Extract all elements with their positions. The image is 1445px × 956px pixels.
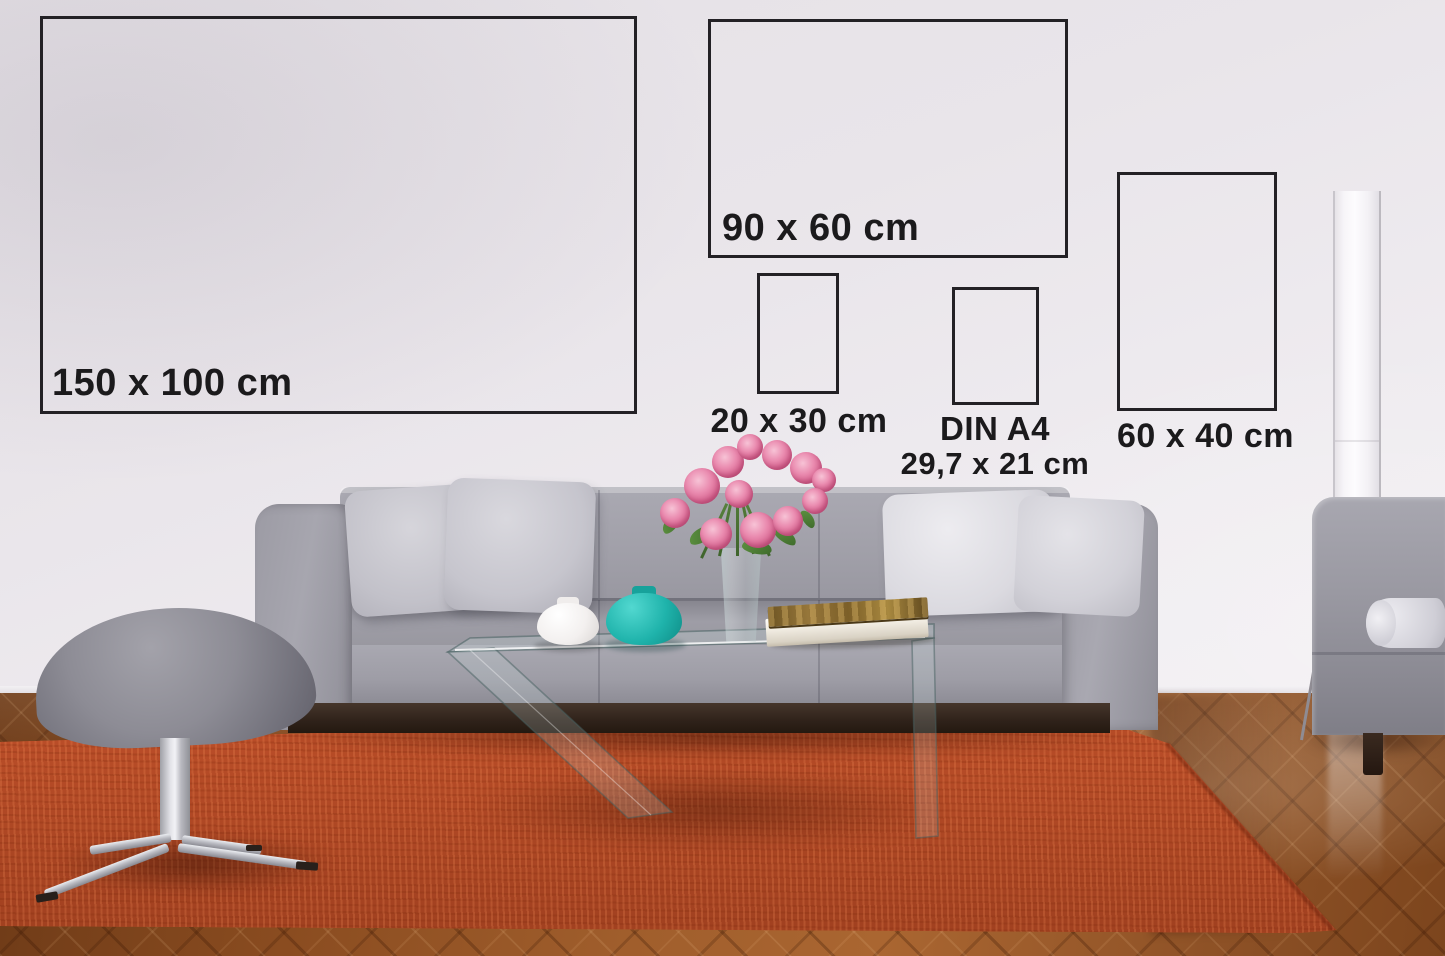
flower-blossom [802, 488, 828, 514]
size-label-90x60: 90 x 60 cm [722, 209, 919, 247]
size-frame-150x100 [40, 16, 637, 414]
flower-blossom [773, 506, 803, 536]
flower-blossom [725, 480, 753, 508]
side-sofa-bolster-cap [1366, 600, 1396, 646]
sofa-seat-front [352, 645, 1062, 707]
white-vase [537, 603, 599, 645]
flower-blossom [660, 498, 690, 528]
size-label-din-a4: DIN A4 [930, 412, 1060, 445]
lamp-seam-upper [1335, 440, 1379, 442]
pillow-gray-2 [444, 477, 597, 614]
flower-blossom [684, 468, 720, 504]
size-frame-din-a4 [952, 287, 1039, 405]
ottoman-foot-right [296, 861, 319, 871]
size-frame-60x40 [1117, 172, 1277, 411]
teal-vase [606, 593, 682, 645]
size-label-60x40: 60 x 40 cm [1117, 419, 1294, 453]
ottoman-foot-back [246, 845, 262, 851]
side-sofa-leg [1363, 733, 1383, 775]
size-frame-20x30 [757, 273, 839, 394]
flower-blossom [740, 512, 776, 548]
size-label-150x100: 150 x 100 cm [52, 364, 293, 402]
sofa-back-seam-left [598, 490, 600, 612]
sofa-plinth [288, 703, 1110, 733]
side-sofa-seam [1312, 652, 1445, 655]
flower-blossom [700, 518, 732, 550]
table-shadow [470, 768, 950, 850]
size-sublabel-din-a4: 29,7 x 21 cm [895, 448, 1095, 479]
sofa-seat-seam-left [598, 600, 600, 704]
poster-size-guide-scene: 150 x 100 cm 90 x 60 cm 20 x 30 cm DIN A… [0, 0, 1445, 956]
ottoman-column [160, 738, 190, 840]
size-label-20x30: 20 x 30 cm [710, 404, 888, 438]
pillow-white-2 [1013, 495, 1145, 617]
flower-blossom [762, 440, 792, 470]
